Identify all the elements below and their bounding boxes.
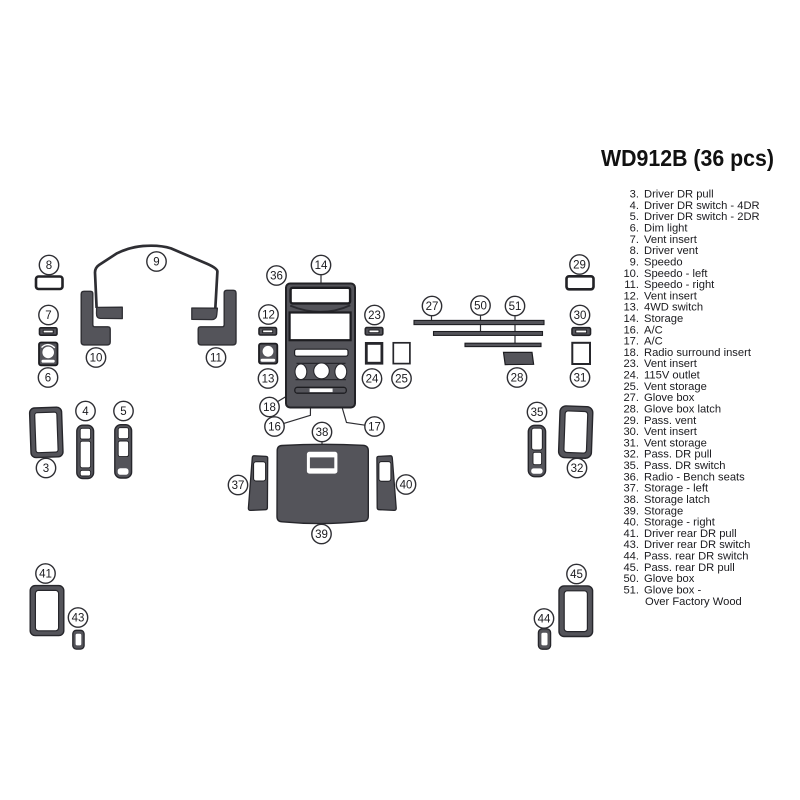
svg-text:14: 14 (315, 260, 328, 272)
svg-text:Pass. rear DR pull: Pass. rear DR pull (644, 562, 735, 574)
svg-text:51: 51 (509, 301, 522, 313)
svg-text:8.: 8. (630, 245, 639, 257)
svg-text:Glove box -: Glove box - (644, 585, 701, 597)
svg-text:37.: 37. (623, 483, 639, 495)
svg-text:14.: 14. (623, 313, 639, 325)
svg-text:Vent storage: Vent storage (644, 437, 707, 449)
svg-text:39.: 39. (623, 505, 639, 517)
svg-text:WD912B (36 pcs): WD912B (36 pcs) (601, 145, 774, 171)
svg-text:A/C: A/C (644, 324, 663, 336)
svg-text:Dim light: Dim light (644, 223, 688, 235)
svg-text:Driver DR switch - 2DR: Driver DR switch - 2DR (644, 211, 760, 223)
svg-text:17.: 17. (623, 336, 639, 348)
svg-text:Vent insert: Vent insert (644, 426, 698, 438)
svg-text:39: 39 (315, 529, 328, 541)
svg-text:40: 40 (400, 480, 413, 492)
svg-text:4: 4 (82, 406, 89, 418)
svg-text:24: 24 (366, 374, 379, 386)
svg-text:50.: 50. (623, 573, 639, 585)
svg-text:Radio - Bench seats: Radio - Bench seats (644, 471, 745, 483)
svg-text:30.: 30. (623, 426, 639, 438)
svg-text:36: 36 (270, 271, 283, 283)
svg-text:50: 50 (474, 301, 487, 313)
svg-text:Vent insert: Vent insert (644, 358, 698, 370)
svg-text:32: 32 (571, 463, 584, 475)
svg-text:Storage - right: Storage - right (644, 517, 716, 529)
svg-text:11: 11 (210, 353, 222, 365)
svg-text:12: 12 (262, 310, 275, 322)
svg-text:18.: 18. (623, 347, 639, 359)
svg-text:3: 3 (43, 463, 49, 475)
svg-text:43.: 43. (623, 539, 639, 551)
svg-text:24.: 24. (623, 370, 639, 382)
svg-text:13: 13 (262, 374, 275, 386)
svg-text:Radio surround insert: Radio surround insert (644, 347, 752, 359)
svg-text:5: 5 (120, 406, 126, 418)
svg-text:10.: 10. (623, 268, 639, 280)
svg-text:45.: 45. (623, 562, 639, 574)
svg-text:13.: 13. (623, 302, 639, 314)
svg-text:29: 29 (573, 260, 586, 272)
svg-text:27: 27 (426, 301, 439, 313)
svg-text:16.: 16. (623, 324, 639, 336)
svg-text:28.: 28. (623, 404, 639, 416)
svg-text:37: 37 (232, 480, 245, 492)
svg-text:12.: 12. (623, 290, 639, 302)
svg-text:6: 6 (45, 373, 51, 385)
svg-text:10: 10 (90, 353, 103, 365)
svg-text:35: 35 (531, 407, 544, 419)
svg-text:4WD switch: 4WD switch (644, 302, 703, 314)
svg-text:Driver DR switch - 4DR: Driver DR switch - 4DR (644, 200, 760, 212)
svg-text:44: 44 (538, 614, 551, 626)
svg-text:Pass. DR pull: Pass. DR pull (644, 449, 712, 461)
svg-text:35.: 35. (623, 460, 639, 472)
svg-text:51.: 51. (623, 585, 639, 597)
svg-text:40.: 40. (623, 517, 639, 529)
svg-text:11.: 11. (624, 279, 639, 291)
svg-text:Pass. DR switch: Pass. DR switch (644, 460, 725, 472)
svg-text:Glove box: Glove box (644, 392, 695, 404)
svg-text:41.: 41. (623, 528, 639, 540)
svg-text:6.: 6. (630, 223, 639, 235)
svg-text:Pass. rear DR switch: Pass. rear DR switch (644, 551, 748, 563)
svg-text:25: 25 (395, 374, 408, 386)
svg-text:Driver DR pull: Driver DR pull (644, 189, 714, 201)
svg-text:Glove box: Glove box (644, 573, 695, 585)
svg-text:Speedo: Speedo (644, 257, 683, 269)
svg-text:41: 41 (39, 569, 52, 581)
svg-text:36.: 36. (623, 471, 639, 483)
svg-text:Storage: Storage (644, 505, 683, 517)
svg-text:32.: 32. (623, 449, 639, 461)
svg-text:Vent insert: Vent insert (644, 234, 698, 246)
svg-text:115V outlet: 115V outlet (644, 370, 701, 382)
svg-text:5.: 5. (630, 211, 639, 223)
svg-text:Storage - left: Storage - left (644, 483, 709, 495)
svg-text:16: 16 (268, 422, 281, 434)
svg-text:Speedo - left: Speedo - left (644, 268, 708, 280)
svg-text:Storage latch: Storage latch (644, 494, 710, 506)
svg-text:27.: 27. (623, 392, 639, 404)
svg-text:38: 38 (316, 427, 329, 439)
svg-text:Over Factory Wood: Over Factory Wood (645, 596, 742, 608)
svg-text:31: 31 (574, 373, 587, 385)
svg-text:23.: 23. (623, 358, 639, 370)
svg-text:45: 45 (570, 569, 583, 581)
svg-text:Pass. vent: Pass. vent (644, 415, 697, 427)
svg-text:Speedo - right: Speedo - right (644, 279, 715, 291)
svg-text:9.: 9. (630, 257, 639, 269)
svg-text:28: 28 (511, 373, 524, 385)
svg-text:7.: 7. (630, 234, 639, 246)
svg-text:9: 9 (153, 257, 159, 269)
svg-text:3.: 3. (630, 189, 639, 201)
svg-text:Driver vent: Driver vent (644, 245, 699, 257)
svg-text:8: 8 (46, 260, 52, 272)
svg-text:30: 30 (574, 310, 587, 322)
svg-text:Vent storage: Vent storage (644, 381, 707, 393)
svg-text:Vent insert: Vent insert (644, 290, 698, 302)
svg-text:Glove box latch: Glove box latch (644, 404, 721, 416)
svg-text:23: 23 (368, 310, 381, 322)
svg-text:4.: 4. (630, 200, 639, 212)
svg-text:Driver rear DR pull: Driver rear DR pull (644, 528, 737, 540)
svg-text:25.: 25. (623, 381, 639, 393)
svg-text:38.: 38. (623, 494, 639, 506)
svg-text:7: 7 (45, 310, 51, 322)
svg-text:Storage: Storage (644, 313, 683, 325)
svg-text:18: 18 (263, 402, 276, 414)
svg-text:43: 43 (72, 613, 85, 625)
svg-text:17: 17 (368, 422, 381, 434)
svg-text:44.: 44. (623, 551, 639, 563)
svg-text:31.: 31. (623, 437, 639, 449)
svg-text:A/C: A/C (644, 336, 663, 348)
svg-text:Driver rear DR switch: Driver rear DR switch (644, 539, 750, 551)
svg-text:29.: 29. (623, 415, 639, 427)
